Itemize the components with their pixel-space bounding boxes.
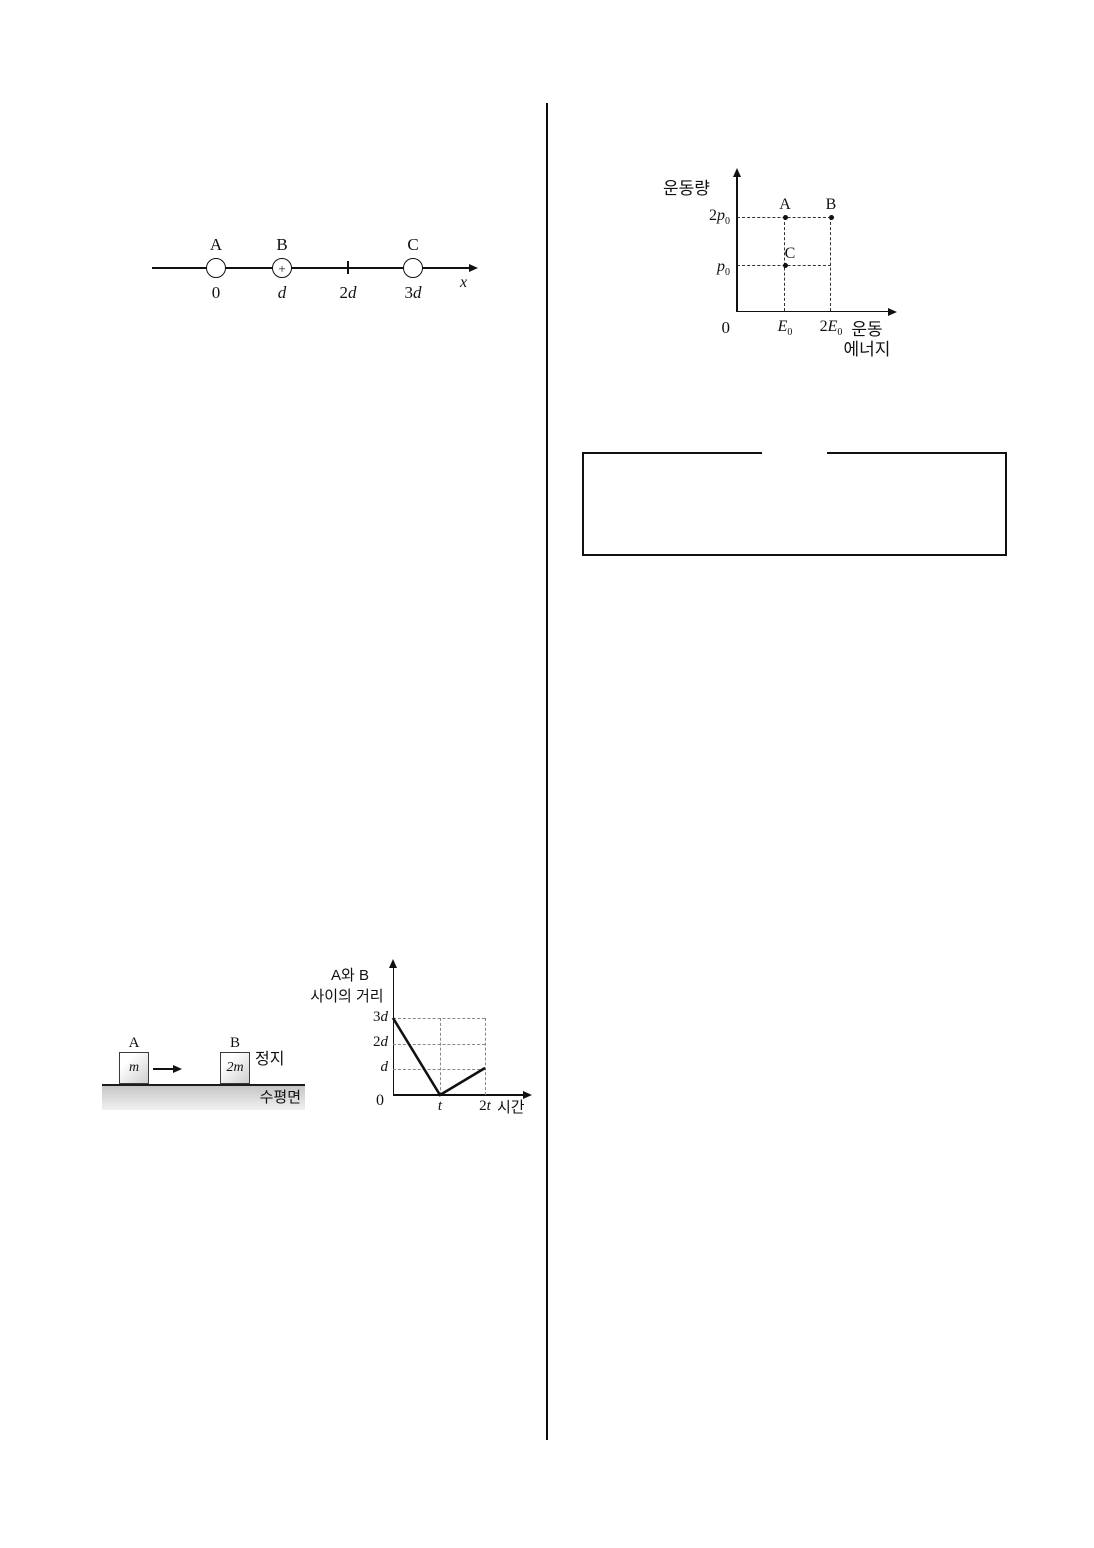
momentum-y-axis-line [736,177,738,312]
block-a-label: A [112,1035,156,1052]
momentum-y-axis-title: 운동량 [663,179,710,199]
distance-y-axis-arrowhead-icon [389,959,397,968]
block-a-mass: m [129,1060,139,1076]
charge-c-circle [403,258,423,278]
distance-ytick-3d: 3d [358,1009,388,1026]
velocity-arrow-shaft [153,1068,175,1070]
charge-b-circle: + [272,258,292,278]
distance-ytick-2d: 2d [358,1034,388,1051]
axis-tick-2d [347,261,349,274]
distance-ytick-d: d [358,1059,388,1076]
data-point-B [829,215,834,220]
charge-b-label: B [262,235,302,255]
momentum-xtick-2E0: 2E0 [811,318,851,339]
distance-x-axis-arrowhead-icon [523,1091,532,1099]
block-a: m [119,1052,149,1084]
column-divider-line [546,103,548,1440]
block-b-label: B [213,1035,257,1052]
distance-origin-label: 0 [364,1092,384,1110]
point-B-label: B [821,196,841,214]
momentum-x-axis-line [736,311,890,313]
point-A-label: A [775,196,795,214]
block-b-mass: 2m [226,1060,243,1076]
charge-a-circle [206,258,226,278]
charge-a-label: A [196,235,236,255]
distance-y-axis-title-line1: A와 B [310,967,390,984]
position-label-0: 0 [194,283,238,303]
horizontal-surface: 수평면 [102,1084,305,1110]
x-axis-arrowhead-icon [469,264,478,272]
momentum-xtick-E0: E0 [765,318,805,339]
x-axis-label: x [460,274,467,292]
distance-time-curve [388,1010,498,1100]
answer-box-top-notch [762,452,827,456]
charge-b-plus-sign: + [278,262,285,275]
momentum-x-axis-arrowhead-icon [888,308,897,316]
exam-page: x A B C + 0 d 2d 3d 운동량 운동 에너지 2p0 p0 0 … [0,0,1094,1548]
data-point-A [783,215,788,220]
distance-xtick-2t: 2t [473,1098,497,1115]
distance-xtick-t: t [432,1098,448,1115]
distance-x-axis-title: 시간 [497,1099,525,1116]
momentum-y-axis-arrowhead-icon [733,168,741,177]
guide-2E0-dashed-line [830,217,831,311]
position-label-d: d [260,283,304,303]
surface-label: 수평면 [260,1089,301,1106]
momentum-x-axis-title-line1: 운동 [845,320,889,340]
velocity-arrowhead-icon [173,1065,182,1073]
charge-c-label: C [393,235,433,255]
distance-y-axis-title-line2: 사이의 거리 [303,988,391,1005]
position-label-2d: 2d [326,283,370,303]
position-label-3d: 3d [391,283,435,303]
momentum-x-axis-title-line2: 에너지 [839,340,895,360]
answer-choices-box [582,452,1007,556]
momentum-origin-label: 0 [708,318,730,338]
x-axis-line [152,267,472,269]
at-rest-label: 정지 [255,1051,284,1069]
point-C-label: C [780,245,800,263]
momentum-ytick-2p0: 2p0 [688,207,730,228]
momentum-ytick-p0: p0 [688,258,730,279]
block-b: 2m [220,1052,250,1084]
